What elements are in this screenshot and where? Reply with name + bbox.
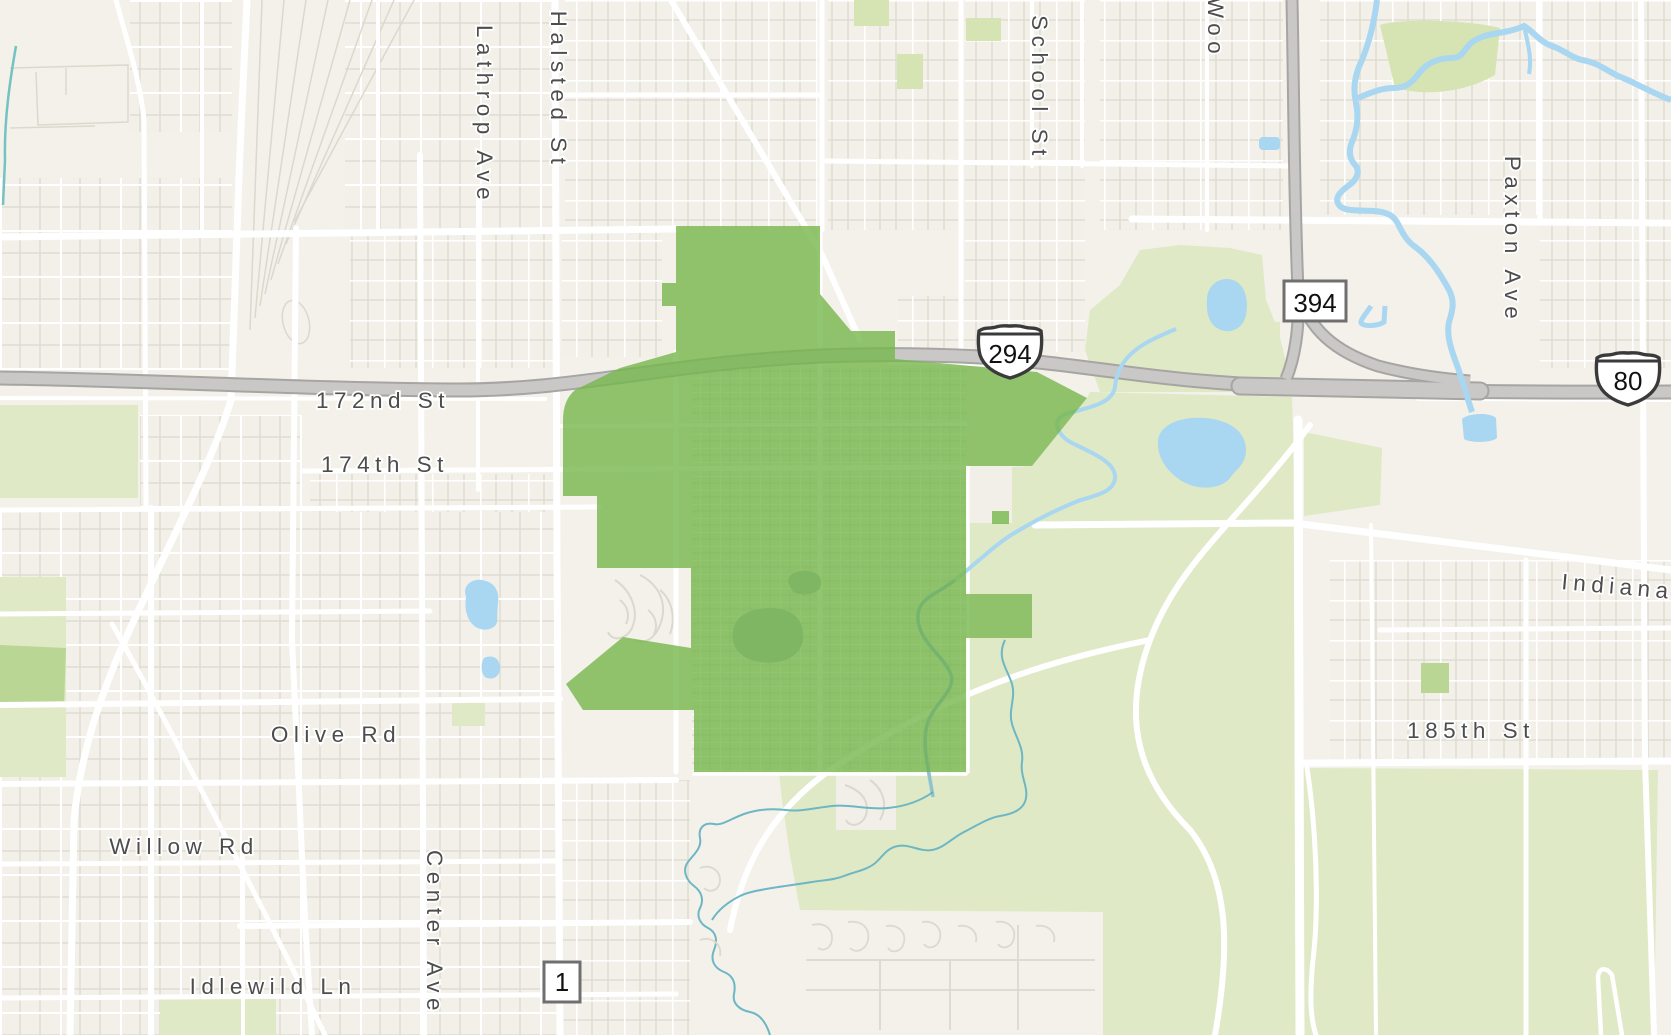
svg-text:Willow Rd: Willow Rd bbox=[109, 834, 259, 859]
svg-text:Idlewild Ln: Idlewild Ln bbox=[190, 974, 357, 999]
svg-text:185th St: 185th St bbox=[1407, 718, 1535, 743]
svg-text:Lathrop Ave: Lathrop Ave bbox=[472, 25, 497, 205]
svg-text:Paxton Ave: Paxton Ave bbox=[1500, 156, 1525, 324]
svg-text:Halsted St: Halsted St bbox=[546, 11, 571, 170]
svg-text:Olive Rd: Olive Rd bbox=[271, 722, 401, 747]
svg-text:Woo: Woo bbox=[1203, 0, 1228, 59]
svg-text:Center Ave: Center Ave bbox=[422, 850, 447, 1016]
svg-text:294: 294 bbox=[988, 339, 1031, 369]
svg-text:1: 1 bbox=[555, 967, 569, 997]
svg-text:School St: School St bbox=[1027, 15, 1052, 161]
svg-text:80: 80 bbox=[1614, 366, 1643, 396]
svg-text:174th St: 174th St bbox=[321, 452, 449, 477]
svg-text:172nd St: 172nd St bbox=[316, 388, 450, 413]
svg-text:394: 394 bbox=[1293, 288, 1336, 318]
